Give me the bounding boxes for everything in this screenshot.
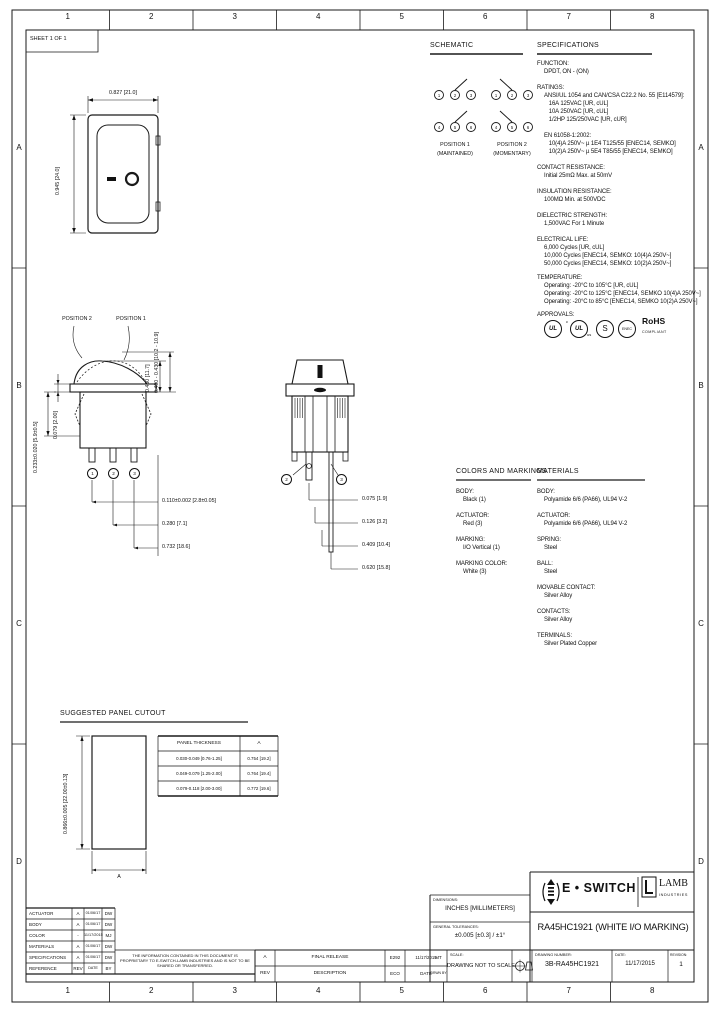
revision-rev: A (72, 943, 84, 950)
material-label: TERMINALS: (537, 632, 597, 640)
material-item: CONTACTS: Silver Alloy (537, 608, 572, 624)
spec-value: Operating: -20°C to 105°C [UR, cUL] Oper… (537, 282, 701, 306)
material-value: Silver Alloy (537, 592, 595, 600)
side-position2-label: POSITION 2 (52, 316, 102, 323)
material-value: Polyamide 6/6 (PA66), UL94 V-2 (537, 520, 627, 528)
terminal-callout: 3 (129, 468, 140, 479)
zone-label: 3 (225, 987, 245, 994)
release-eco: E292 (385, 954, 405, 961)
revision-date: 01/06/17 (84, 921, 102, 928)
material-label: ACTUATOR: (537, 512, 627, 520)
zone-label: D (695, 858, 707, 865)
revision-date: 01/06/17 (84, 943, 102, 950)
terminal-number: 3 (467, 91, 476, 100)
release-eco-header: ECO (385, 970, 405, 977)
spec-value: DPDT, ON - (ON) (537, 68, 589, 76)
tolerances-value: ±0.005 [±0.3] / ±1° (430, 932, 530, 939)
dimensions-label: DIMENSIONS: (433, 897, 458, 904)
position1-sublabel: (MAINTAINED) (425, 151, 485, 158)
revision-item: SPECIFICATIONS (29, 954, 66, 961)
actuator-height-dimension: 0.460 [11.7] (145, 352, 152, 392)
cutout-table-cell: 0.754 [19.2] (240, 755, 278, 762)
material-label: BODY: (537, 488, 627, 496)
revision-item: MATERIALS (29, 943, 54, 950)
spec-value: 100MΩ Min. at 500VDC (537, 196, 612, 204)
material-label: SPRING: (537, 536, 561, 544)
revision-by: DW (102, 943, 115, 950)
terminal-number: 4 (435, 123, 444, 132)
spec-label: ELECTRICAL LIFE: (537, 236, 671, 244)
color-item: MARKING COLOR: White (3) (456, 560, 507, 576)
sheet-number-label: SHEET 1 OF 1 (30, 36, 67, 43)
material-value: Polyamide 6/6 (PA66), UL94 V-2 (537, 496, 627, 504)
zone-label: B (695, 382, 707, 389)
cutout-table-cell: 0.049-0.079 [1.25-2.00] (158, 770, 240, 777)
spec-label: INSULATION RESISTANCE: (537, 188, 612, 196)
release-description-header: DESCRIPTION (275, 970, 385, 977)
zone-label: D (13, 858, 25, 865)
zone-label: 2 (141, 13, 161, 20)
terminal-callout: 1 (87, 468, 98, 479)
revision-rev: - (72, 932, 84, 939)
cul-logo-c: c (566, 318, 568, 325)
release-drawn-by: MT (430, 954, 447, 961)
terminal-spacing-dimension: 0.280 [7.1] (162, 521, 187, 528)
spec-insulation-resistance: INSULATION RESISTANCE: 100MΩ Min. at 500… (537, 188, 612, 204)
revision-label: REVISION: (670, 952, 687, 959)
zone-label: 8 (642, 987, 662, 994)
scale-value: DRAWING NOT TO SCALE (447, 963, 512, 970)
zone-label: 6 (475, 13, 495, 20)
end-view-drawing (286, 360, 358, 569)
revision-by: DW (102, 954, 115, 961)
cutout-width-label: A (92, 874, 146, 881)
material-label: CONTACTS: (537, 608, 572, 616)
material-value: Silver Alloy (537, 616, 572, 624)
zone-label: B (13, 382, 25, 389)
eswitch-logo-icon (543, 879, 559, 905)
cutout-table-cell: 0.772 [19.6] (240, 785, 278, 792)
material-item: BODY: Polyamide 6/6 (PA66), UL94 V-2 (537, 488, 627, 504)
cutout-table-cell: 0.764 [19.4] (240, 770, 278, 777)
release-drawn-by-header: DRWN BY (428, 970, 449, 977)
terminal-number: 1 (435, 91, 444, 100)
color-label: MARKING COLOR: (456, 560, 507, 568)
terminal-callout: 3 (336, 474, 347, 485)
color-value: Red (3) (456, 520, 489, 528)
material-label: MOVABLE CONTACT: (537, 584, 595, 592)
cutout-table-header: PANEL THICKNESS (158, 740, 240, 747)
color-label: BODY: (456, 488, 486, 496)
material-value: Silver Plated Copper (537, 640, 597, 648)
release-rev-header: REV (255, 970, 275, 977)
terminal-callout: 2 (281, 474, 292, 485)
lamb-brand-subtext: INDUSTRIES (659, 892, 688, 899)
spec-label: CONTACT RESISTANCE: (537, 164, 612, 172)
panel-cutout-title: SUGGESTED PANEL CUTOUT (60, 710, 166, 717)
zone-label: 4 (308, 13, 328, 20)
end-view-dimension: 0.075 [1.9] (362, 496, 387, 503)
spec-contact-resistance: CONTACT RESISTANCE: Initial 25mΩ Max. at… (537, 164, 612, 180)
revision-rev: A (72, 954, 84, 961)
zone-label: 7 (559, 987, 579, 994)
drawing-sheet: 1 2 3 4 5 6 7 8 1 2 3 4 5 6 7 8 A B C D … (0, 0, 720, 1012)
spec-label: TEMPERATURE: (537, 274, 701, 282)
scale-label: SCALE: (450, 952, 464, 959)
zone-label: 1 (58, 987, 78, 994)
terminal-number: 2 (508, 91, 517, 100)
schematic-drawing (435, 79, 533, 132)
material-label: BALL: (537, 560, 557, 568)
specifications-title: SPECIFICATIONS (537, 42, 599, 49)
position2-sublabel: (MOMENTARY) (482, 151, 542, 158)
panel-thickness-dimension: 0.079 [2.00] (53, 401, 60, 439)
spec-label: FUNCTION: (537, 60, 589, 68)
revision-rev: A (72, 921, 84, 928)
revision-item: ACTUATOR (29, 910, 53, 917)
zone-label: 4 (308, 987, 328, 994)
zone-label: C (13, 620, 25, 627)
proprietary-note: THE INFORMATION CONTAINED IN THIS DOCUME… (118, 953, 252, 969)
spec-value: Initial 25mΩ Max. at 50mV (537, 172, 612, 180)
spec-value: 6,000 Cycles [UR, cUL] 10,000 Cycles [EN… (537, 244, 671, 268)
terminal-number: 2 (451, 91, 460, 100)
terminal-number: 5 (451, 123, 460, 132)
material-item: MOVABLE CONTACT: Silver Alloy (537, 584, 595, 600)
cul-logo: UL (570, 320, 588, 338)
revision-date: 01/06/17 (84, 954, 102, 961)
revision-rev: A (72, 910, 84, 917)
semko-logo: S (596, 320, 614, 338)
spec-electrical-life: ELECTRICAL LIFE: 6,000 Cycles [UR, cUL] … (537, 236, 671, 268)
color-item: MARKING: I/O Vertical (1) (456, 536, 500, 552)
lamb-brand-text: LAMB (659, 880, 688, 887)
actuator-travel-dimension: 0.400 - 0.430 [10.2 - 10.9] (154, 313, 161, 393)
terminal-number: 1 (492, 91, 501, 100)
drawing-number-value: 3B-RA45HC1921 (532, 961, 612, 968)
sheet-border (12, 10, 708, 1002)
zone-label: 7 (559, 13, 579, 20)
material-item: SPRING: Steel (537, 536, 561, 552)
revision-date: DATE (84, 965, 102, 972)
enec-logo: ENEC (618, 320, 636, 338)
front-width-dimension: 0.827 [21.0] (88, 90, 158, 97)
color-item: ACTUATOR: Red (3) (456, 512, 489, 528)
zone-label: 5 (392, 13, 412, 20)
release-rev: A (255, 954, 275, 961)
terminal-spacing-dimension: 0.732 [18.6] (162, 544, 190, 551)
revision-item: BODY (29, 921, 42, 928)
spec-label: DIELECTRIC STRENGTH: (537, 212, 607, 220)
zone-label: C (695, 620, 707, 627)
terminal-number: 6 (524, 123, 533, 132)
revision-date: 01/06/17 (84, 910, 102, 917)
revision-item: REFERENCE (29, 965, 57, 972)
spec-function: FUNCTION: DPDT, ON - (ON) (537, 60, 589, 76)
dimensions-value: INCHES [MILLIMETERS] (430, 905, 530, 912)
side-position1-label: POSITION 1 (106, 316, 156, 323)
spec-temperature: TEMPERATURE: Operating: -20°C to 105°C [… (537, 274, 701, 306)
material-item: TERMINALS: Silver Plated Copper (537, 632, 597, 648)
front-height-dimension: 0.945 [24.0] (55, 153, 62, 195)
material-value: Steel (537, 544, 561, 552)
color-value: I/O Vertical (1) (456, 544, 500, 552)
terminal-callout: 2 (108, 468, 119, 479)
clip-range-dimension: 0.233±0.020 [5.9±0.5] (33, 403, 40, 473)
cutout-table-cell: 0.030-0.049 [0.76-1.25] (158, 755, 240, 762)
cul-logo-us: us (587, 331, 591, 338)
terminal-width-dimension: 0.110±0.002 [2.8±0.05] (162, 498, 216, 505)
color-value: White (3) (456, 568, 507, 576)
cutout-height-dimension: 0.866±0.005 [22.00±0.13] (63, 749, 70, 834)
approvals-label: APPROVALS: (537, 312, 575, 319)
zone-label: 3 (225, 13, 245, 20)
revision-rev: REV (72, 965, 84, 972)
tolerances-label: GENERAL TOLERANCES: (433, 924, 479, 931)
ul-logo: UL (544, 320, 562, 338)
release-description: FINAL RELEASE (275, 954, 385, 961)
rohs-logo-sub: COMPLIANT (642, 329, 667, 336)
material-item: BALL: Steel (537, 560, 557, 576)
end-view-dimension: 0.620 [15.8] (362, 565, 390, 572)
terminal-number: 3 (524, 91, 533, 100)
position2-label: POSITION 2 (482, 142, 542, 149)
material-item: ACTUATOR: Polyamide 6/6 (PA66), UL94 V-2 (537, 512, 627, 528)
cutout-table-cell: 0.079-0.118 [2.00-3.00] (158, 785, 240, 792)
spec-value: ANSI/UL 1054 and CAN/CSA C22.2 No. 55 [E… (537, 92, 684, 156)
zone-label: 2 (141, 987, 161, 994)
drawing-title: RA45HC1921 (WHITE I/O MARKING) (532, 924, 694, 931)
revision-item: COLOR (29, 932, 45, 939)
end-view-dimension: 0.126 [3.2] (362, 519, 387, 526)
drawing-number-label: DRAWING NUMBER: (535, 952, 572, 959)
spec-ratings: RATINGS: ANSI/UL 1054 and CAN/CSA C22.2 … (537, 84, 684, 156)
zone-label: 1 (58, 13, 78, 20)
front-view-drawing (70, 96, 160, 233)
zone-label: A (695, 144, 707, 151)
zone-label: A (13, 144, 25, 151)
terminal-number: 5 (508, 123, 517, 132)
zone-label: 8 (642, 13, 662, 20)
revision-by: MJ (102, 932, 115, 939)
spec-value: 1,500VAC For 1 Minute (537, 220, 607, 228)
revision-by: BY (102, 965, 115, 972)
color-label: ACTUATOR: (456, 512, 489, 520)
revision-date: 11/17/2015 (84, 932, 102, 939)
color-value: Black (1) (456, 496, 486, 504)
spec-dielectric-strength: DIELECTRIC STRENGTH: 1,500VAC For 1 Minu… (537, 212, 607, 228)
color-label: MARKING: (456, 536, 500, 544)
eswitch-brand-text: E • SWITCH (562, 885, 636, 892)
spec-label: RATINGS: (537, 84, 684, 92)
revision-by: DW (102, 910, 115, 917)
io-marking (107, 173, 138, 185)
revision-by: DW (102, 921, 115, 928)
colors-title: COLORS AND MARKINGS (456, 468, 547, 475)
zone-label: 5 (392, 987, 412, 994)
rohs-logo: RoHS (642, 318, 665, 325)
color-item: BODY: Black (1) (456, 488, 486, 504)
materials-title: MATERIALS (537, 468, 579, 475)
terminal-number: 6 (467, 123, 476, 132)
zone-label: 6 (475, 987, 495, 994)
schematic-title: SCHEMATIC (430, 42, 473, 49)
cutout-table-header: A (240, 740, 278, 747)
revision-value: 1 (668, 961, 694, 968)
material-value: Steel (537, 568, 557, 576)
date-value: 11/17/2015 (612, 961, 668, 968)
lamb-logo-icon (642, 877, 656, 897)
position1-label: POSITION 1 (425, 142, 485, 149)
end-view-dimension: 0.409 [10.4] (362, 542, 390, 549)
date-label: DATE: (615, 952, 626, 959)
terminal-number: 4 (492, 123, 501, 132)
